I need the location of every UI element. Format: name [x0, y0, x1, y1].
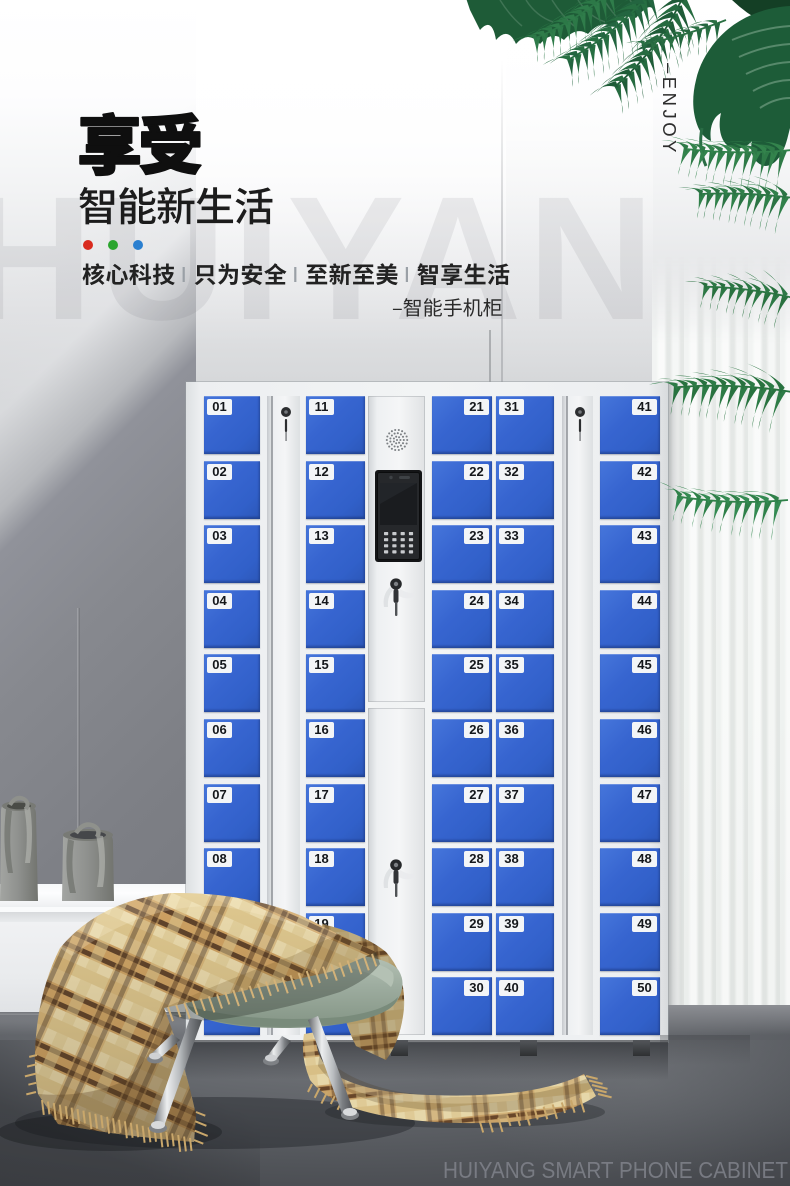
svg-text:HUIYANG SMART PHONE CABINET: HUIYANG SMART PHONE CABINET	[443, 1157, 788, 1183]
